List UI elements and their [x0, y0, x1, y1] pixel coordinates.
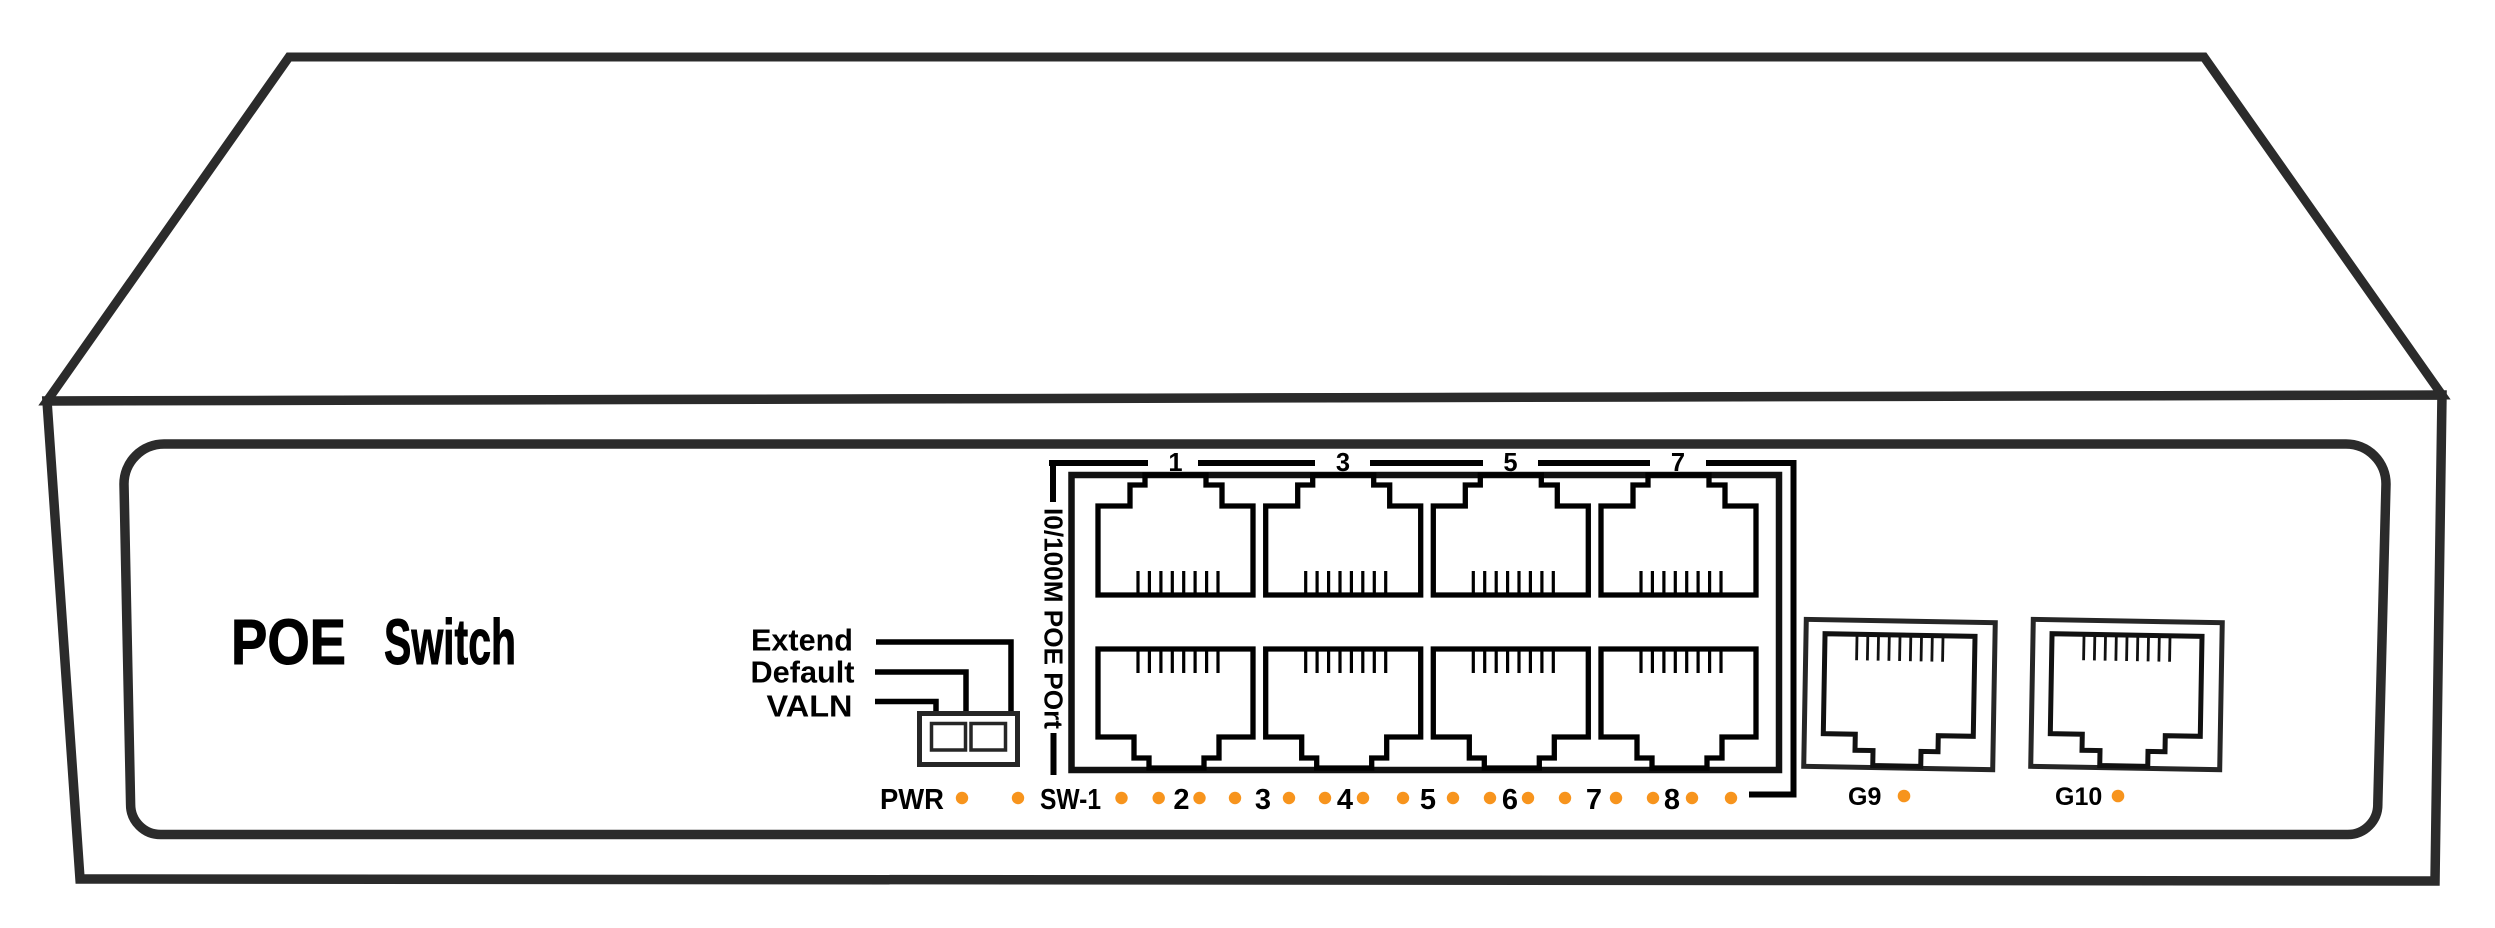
svg-text:Default: Default [751, 656, 855, 690]
svg-text:2: 2 [1173, 784, 1189, 816]
svg-text:Switch: Switch [384, 606, 516, 678]
svg-text:3: 3 [1255, 784, 1271, 816]
svg-text:VALN: VALN [767, 690, 853, 724]
svg-text:5: 5 [1420, 784, 1436, 816]
svg-text:G10: G10 [2055, 783, 2102, 811]
svg-text:8: 8 [1664, 784, 1680, 816]
svg-text:SW-1: SW-1 [1040, 784, 1101, 816]
svg-text:PWR: PWR [880, 784, 944, 816]
svg-text:I0/100M POE POrt: I0/100M POE POrt [1039, 508, 1067, 730]
svg-text:4: 4 [1337, 784, 1353, 816]
svg-text:G9: G9 [1848, 783, 1881, 811]
svg-text:6: 6 [1502, 784, 1518, 816]
svg-text:7: 7 [1586, 784, 1602, 816]
svg-text:POE: POE [231, 606, 346, 678]
svg-text:Extend: Extend [751, 624, 853, 658]
